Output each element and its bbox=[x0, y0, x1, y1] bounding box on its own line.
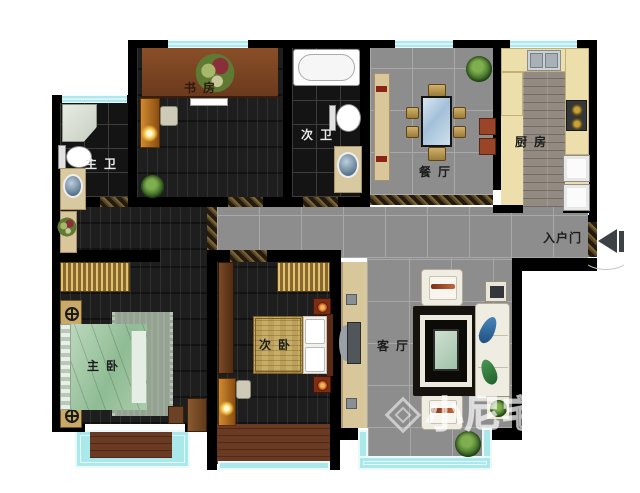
second-desk-lamp bbox=[219, 401, 234, 416]
pillow bbox=[305, 319, 325, 344]
nightstand-lamp bbox=[317, 380, 328, 391]
study-shelf bbox=[190, 98, 228, 106]
room-label-entry: 入户门 bbox=[543, 232, 582, 244]
nightstand-lamp bbox=[65, 409, 79, 423]
hall-corridor-threshold bbox=[207, 207, 217, 250]
speaker bbox=[346, 294, 357, 305]
room-label-second-bedroom: 次 卧 bbox=[259, 339, 292, 351]
wall bbox=[130, 197, 228, 207]
speaker bbox=[346, 398, 357, 409]
wall bbox=[128, 40, 137, 207]
kitchen-window bbox=[510, 40, 577, 48]
nightstand bbox=[60, 300, 82, 326]
nightstand-lamp bbox=[317, 302, 328, 313]
master-balcony-floor bbox=[90, 432, 172, 458]
master-bed-throw bbox=[131, 331, 146, 403]
wash-basin bbox=[63, 174, 83, 198]
wash-basin bbox=[337, 152, 359, 178]
floor-plan: 书 房 次 卫 主 卫 餐 厅 厨 房 入户门 主 卧 次 卧 客 厅 小尼宅配 bbox=[0, 0, 640, 493]
wall bbox=[338, 197, 370, 207]
dining-window bbox=[395, 40, 453, 48]
entry-door-swing-arc bbox=[583, 246, 629, 270]
master-bath-door-threshold bbox=[100, 197, 130, 207]
gas-stove bbox=[566, 100, 587, 131]
room-label-study: 书 房 bbox=[184, 82, 217, 94]
kitchen-counter-left bbox=[501, 72, 523, 116]
nightstand bbox=[313, 376, 331, 393]
watermark-logo-inner bbox=[395, 407, 412, 424]
dining-chair bbox=[406, 126, 419, 138]
hallway-wood-floor bbox=[60, 207, 207, 250]
study-plant bbox=[141, 175, 164, 198]
stove-burner bbox=[571, 104, 583, 116]
bathtub-inner bbox=[298, 54, 355, 81]
pillow bbox=[305, 347, 325, 372]
second-wardrobe-tall bbox=[218, 262, 234, 374]
sofa bbox=[475, 303, 510, 399]
second-bed-headboard bbox=[327, 314, 333, 376]
hall-flowers bbox=[56, 216, 78, 238]
dining-table bbox=[421, 96, 452, 147]
appliance bbox=[563, 184, 590, 211]
room-label-kitchen: 厨 房 bbox=[515, 136, 548, 148]
study-desk-lamp bbox=[141, 125, 158, 142]
dining-stool bbox=[479, 118, 496, 135]
room-label-master-bath: 主 卫 bbox=[85, 158, 118, 170]
coffee-table bbox=[413, 306, 479, 396]
dining-chair bbox=[453, 126, 466, 138]
master-wardrobe bbox=[60, 262, 130, 292]
kitchen-sink bbox=[527, 50, 561, 71]
stove-burner bbox=[571, 118, 583, 130]
armchair-pillow bbox=[431, 284, 455, 289]
sink-basin bbox=[545, 53, 558, 68]
sideboard-drawer bbox=[376, 156, 387, 162]
bathtub bbox=[293, 49, 360, 86]
wall bbox=[588, 215, 597, 222]
wall bbox=[589, 40, 597, 222]
watermark-text: 小尼宅配 bbox=[426, 396, 578, 433]
sofa-deco-leaf bbox=[478, 357, 500, 386]
wall bbox=[263, 197, 303, 207]
wall bbox=[207, 250, 217, 470]
wall bbox=[493, 205, 523, 213]
living-balcony-window-bottom bbox=[358, 456, 492, 470]
wall bbox=[330, 428, 358, 440]
second-wardrobe bbox=[277, 262, 330, 292]
toilet bbox=[336, 104, 361, 132]
second-desk-chair bbox=[236, 380, 251, 399]
sideboard-drawer bbox=[376, 86, 387, 92]
dining-chair bbox=[453, 107, 466, 119]
room-label-master-bedroom: 主 卧 bbox=[87, 360, 120, 372]
room-label-second-bath: 次 卫 bbox=[301, 129, 334, 141]
room-label-living: 客 厅 bbox=[377, 340, 410, 352]
dining-chair bbox=[406, 107, 419, 119]
master-bench bbox=[168, 406, 184, 424]
wall bbox=[283, 40, 292, 200]
second-balcony-window bbox=[218, 461, 330, 470]
fridge bbox=[563, 155, 590, 182]
side-table bbox=[485, 281, 507, 302]
nightstand bbox=[313, 298, 331, 315]
dining-plant bbox=[466, 56, 492, 82]
master-dresser bbox=[187, 398, 207, 432]
dining-chair bbox=[428, 147, 446, 161]
wall bbox=[493, 40, 501, 190]
coffee-table-glass bbox=[433, 329, 459, 371]
dining-stool bbox=[479, 138, 496, 155]
study-door-threshold bbox=[228, 197, 263, 207]
dining-threshold bbox=[370, 195, 493, 205]
nightstand-lamp bbox=[65, 307, 79, 321]
toilet-tank bbox=[58, 145, 66, 169]
second-bedroom-door-threshold bbox=[230, 250, 267, 262]
second-balcony-floor bbox=[217, 424, 330, 464]
study-chair bbox=[160, 106, 178, 126]
sofa-deco-leaf bbox=[476, 314, 501, 345]
room-label-dining: 餐 厅 bbox=[419, 166, 452, 178]
second-bath-door-threshold bbox=[303, 197, 338, 207]
tv bbox=[347, 322, 361, 364]
master-bed-headboard bbox=[60, 324, 71, 410]
sink-basin bbox=[530, 53, 543, 68]
study-window bbox=[168, 40, 248, 48]
side-table-deco bbox=[490, 286, 504, 298]
master-bath-window bbox=[62, 95, 127, 103]
armchair bbox=[421, 269, 463, 306]
